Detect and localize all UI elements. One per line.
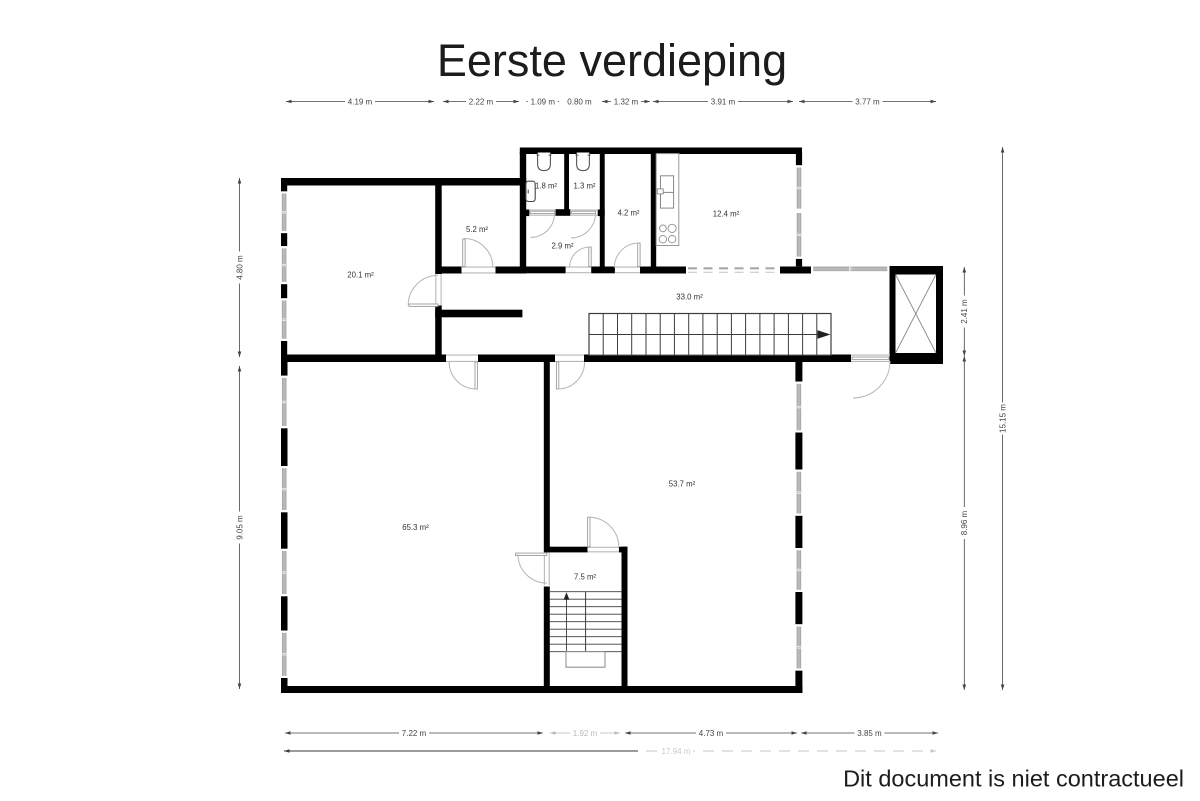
svg-text:0.80 m: 0.80 m [567,97,592,106]
svg-text:5.2 m²: 5.2 m² [466,225,488,234]
svg-text:15.15 m: 15.15 m [998,404,1007,433]
svg-text:20.1 m²: 20.1 m² [347,271,374,280]
svg-text:65.3 m²: 65.3 m² [402,523,429,532]
svg-text:7.5 m²: 7.5 m² [574,573,596,582]
svg-text:12.4 m²: 12.4 m² [713,210,740,219]
svg-text:1.32 m: 1.32 m [614,97,639,106]
svg-text:3.85 m: 3.85 m [857,729,882,738]
svg-text:7.22 m: 7.22 m [402,729,427,738]
svg-text:2.9 m²: 2.9 m² [551,242,573,251]
svg-text:17.94 m: 17.94 m [662,747,691,756]
svg-text:4.2 m²: 4.2 m² [617,209,639,218]
svg-text:Eerste verdieping: Eerste verdieping [437,35,787,86]
svg-text:Dit document is niet contractu: Dit document is niet contractueel [843,766,1184,792]
svg-text:4.80 m: 4.80 m [235,255,244,280]
svg-text:2.22 m: 2.22 m [469,97,494,106]
svg-text:53.7 m²: 53.7 m² [669,480,696,489]
svg-text:8.96 m: 8.96 m [960,510,969,535]
svg-text:9.05 m: 9.05 m [235,515,244,540]
svg-text:1.8 m²: 1.8 m² [535,182,557,191]
svg-text:33.0 m²: 33.0 m² [676,293,703,302]
svg-text:4.73 m: 4.73 m [699,729,724,738]
svg-text:3.91 m: 3.91 m [711,97,736,106]
svg-text:1.3 m²: 1.3 m² [573,182,595,191]
svg-text:4.19 m: 4.19 m [348,97,373,106]
svg-text:1.92 m: 1.92 m [573,729,598,738]
svg-text:2.41 m: 2.41 m [960,299,969,324]
svg-text:1.09 m: 1.09 m [531,97,556,106]
svg-text:3.77 m: 3.77 m [855,97,880,106]
